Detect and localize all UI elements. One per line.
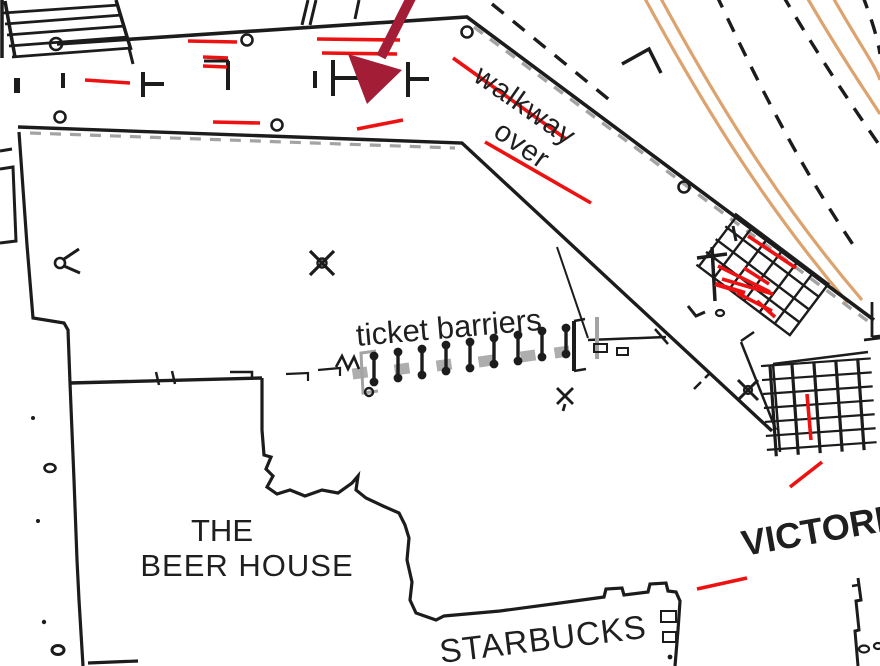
walkway-over-label: walkway over xyxy=(448,59,582,181)
floor-plan: walkway over ticket barriers THE BEER HO… xyxy=(0,0,880,666)
starbucks-text: STARBUCKS xyxy=(437,608,648,666)
right-edge-wall xyxy=(855,578,861,666)
starbucks-label: STARBUCKS xyxy=(437,608,648,666)
dashed-corner-mark xyxy=(622,49,661,73)
small-x-symbol xyxy=(557,388,573,411)
station-name-text: VICTORIA xyxy=(738,494,880,564)
inner-walkway-wall xyxy=(18,127,772,431)
beer-house-label: THE BEER HOUSE xyxy=(140,513,353,583)
beer-house-line1: THE xyxy=(191,513,253,548)
top-left-stairs-icon xyxy=(2,0,133,64)
left-boundary-wall xyxy=(19,132,83,666)
concourse-wall xyxy=(70,378,262,383)
floor-plan-svg: walkway over ticket barriers THE BEER HO… xyxy=(0,0,880,666)
camera-symbol xyxy=(55,249,80,273)
beer-house-line2: BEER HOUSE xyxy=(140,548,353,583)
station-name-label: VICTORIA xyxy=(738,494,880,564)
cross-column-symbol xyxy=(310,251,334,275)
lower-stairs-crosshatch-icon xyxy=(761,352,877,457)
